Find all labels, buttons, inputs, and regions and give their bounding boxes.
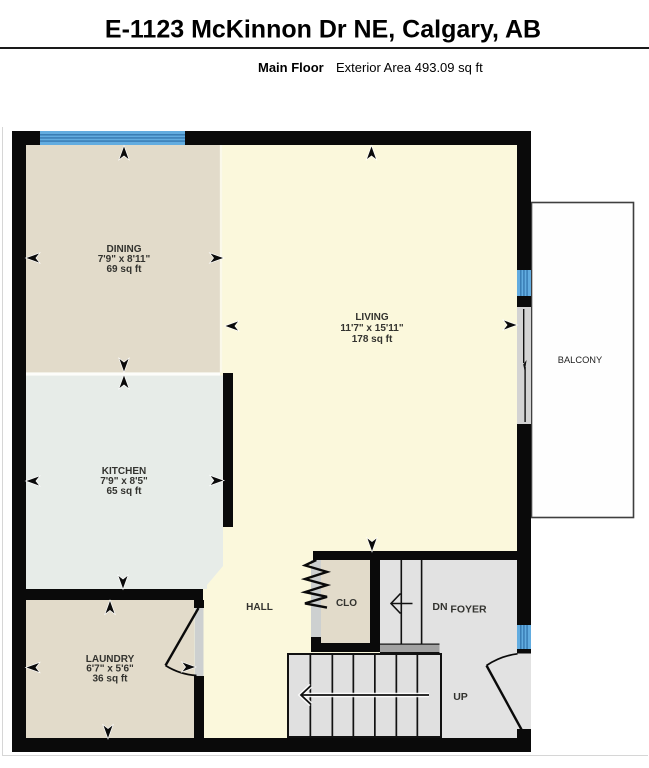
svg-text:69 sq ft: 69 sq ft [106,264,142,275]
svg-text:178 sq ft: 178 sq ft [352,334,393,345]
svg-text:UP: UP [453,691,468,703]
svg-text:FOYER: FOYER [450,604,487,616]
svg-text:Main Floor: Main Floor [258,60,324,75]
svg-text:11'7" x 15'11": 11'7" x 15'11" [340,323,403,334]
svg-text:E-1123 McKinnon Dr NE, Calgary: E-1123 McKinnon Dr NE, Calgary, AB [105,16,541,44]
svg-text:DN: DN [432,601,447,613]
svg-text:CLO: CLO [336,598,357,609]
svg-text:LIVING: LIVING [355,312,389,323]
svg-text:HALL: HALL [246,602,273,613]
svg-text:36 sq ft: 36 sq ft [92,674,128,685]
svg-text:65 sq ft: 65 sq ft [106,486,142,497]
svg-text:Exterior Area 493.09 sq ft: Exterior Area 493.09 sq ft [336,60,483,75]
svg-text:BALCONY: BALCONY [558,355,602,365]
